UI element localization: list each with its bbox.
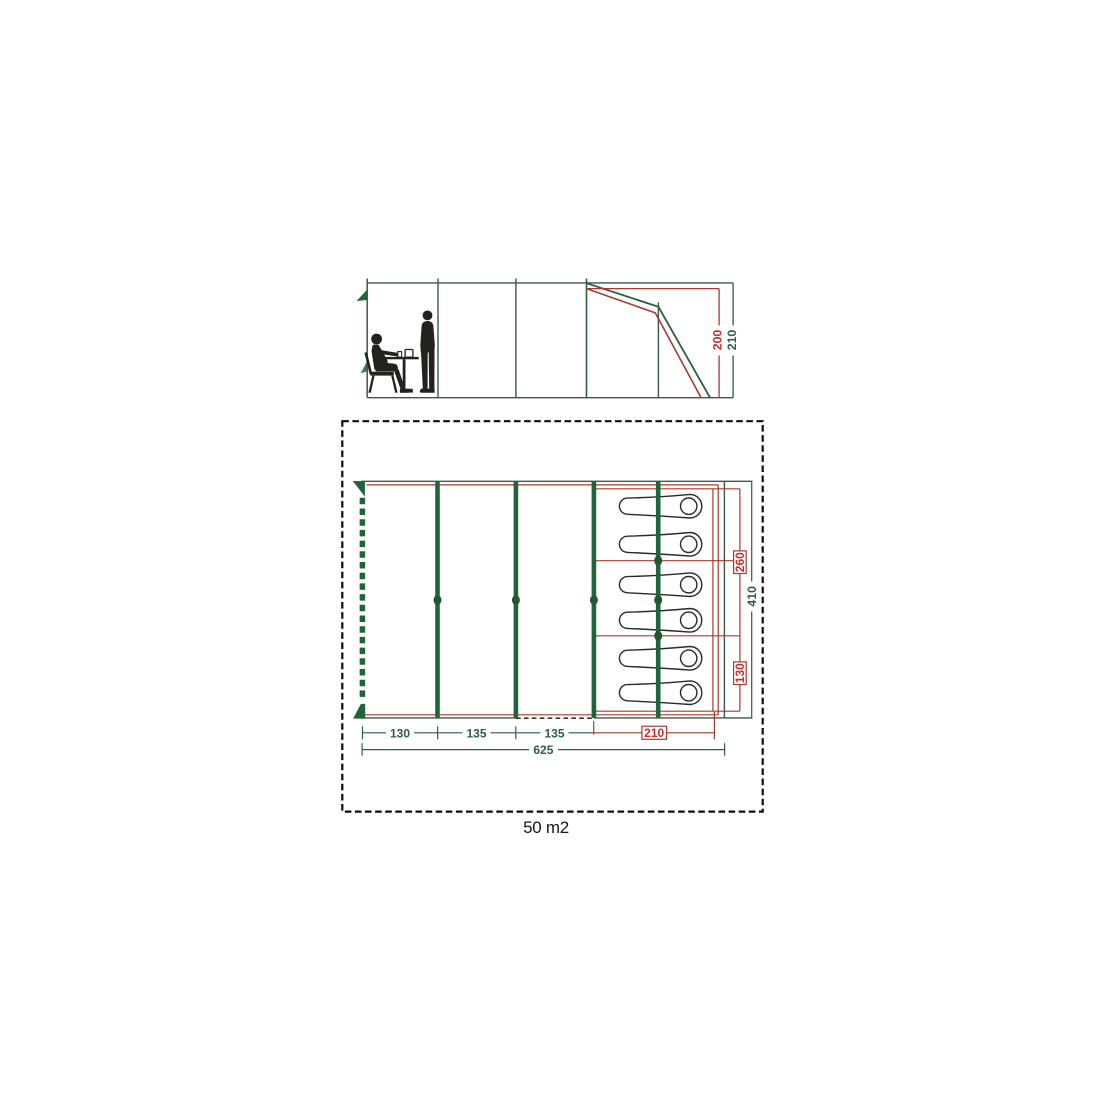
svg-text:135: 135 (466, 726, 486, 740)
svg-text:50 m2: 50 m2 (523, 818, 569, 837)
svg-text:130: 130 (733, 663, 747, 683)
svg-text:410: 410 (745, 586, 759, 607)
svg-text:210: 210 (644, 726, 664, 740)
svg-text:135: 135 (544, 726, 564, 740)
svg-text:130: 130 (390, 726, 410, 740)
svg-text:200: 200 (711, 330, 725, 351)
svg-text:210: 210 (725, 330, 739, 351)
svg-text:260: 260 (733, 552, 747, 572)
svg-text:625: 625 (533, 743, 553, 757)
